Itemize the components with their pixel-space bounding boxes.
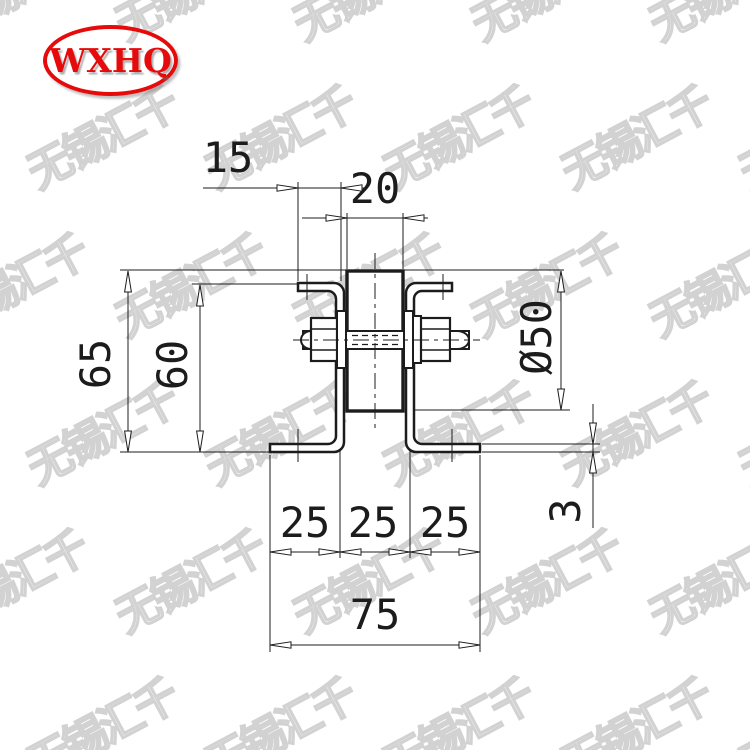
technical-drawing: 15 20 65 60 Ø50 3 25 25 25 75 — [0, 0, 750, 750]
arrow — [319, 549, 340, 555]
dim-label-total-height: 65 — [71, 339, 120, 390]
dim-label-total-width: 75 — [350, 590, 401, 639]
dim-label-seg-left: 25 — [280, 498, 331, 547]
right-channel-plate — [406, 283, 480, 452]
arrow — [125, 431, 132, 452]
dim-label-top-offset: 15 — [203, 133, 254, 182]
arrow — [403, 215, 424, 221]
arrow — [197, 431, 204, 452]
dim-label-tube-width: 20 — [350, 164, 401, 213]
arrow — [558, 271, 565, 292]
extension-lines — [120, 182, 600, 652]
arrowheads — [125, 185, 597, 648]
dim-label-seg-right: 25 — [420, 498, 471, 547]
arrow — [270, 642, 291, 648]
arrow — [590, 423, 597, 444]
arrow — [197, 285, 204, 306]
left-channel-plate — [270, 283, 344, 452]
arrow — [558, 389, 565, 410]
arrow — [326, 215, 347, 221]
arrow — [277, 185, 298, 191]
product-drawing-page: 无锡汇千无锡汇千无锡汇千无锡汇千无锡汇千无锡汇千无锡汇千无锡汇千无锡汇千无锡汇千… — [0, 0, 750, 750]
arrow — [125, 271, 132, 292]
arrow — [410, 549, 431, 555]
brand-logo-ellipse: WXHQ — [43, 25, 178, 96]
dim-label-roller-diameter: Ø50 — [512, 299, 561, 375]
arrow — [459, 642, 480, 648]
brand-logo-text: WXHQ — [49, 41, 172, 80]
arrow — [459, 549, 480, 555]
arrow — [590, 452, 597, 473]
arrow — [389, 549, 410, 555]
arrow — [270, 549, 291, 555]
dimension-labels: 15 20 65 60 Ø50 3 25 25 25 75 — [71, 133, 590, 639]
arrow — [340, 549, 361, 555]
dim-label-seg-mid: 25 — [348, 498, 399, 547]
dim-label-plate-thickness: 3 — [541, 498, 590, 523]
dim-label-plate-height: 60 — [148, 340, 197, 391]
